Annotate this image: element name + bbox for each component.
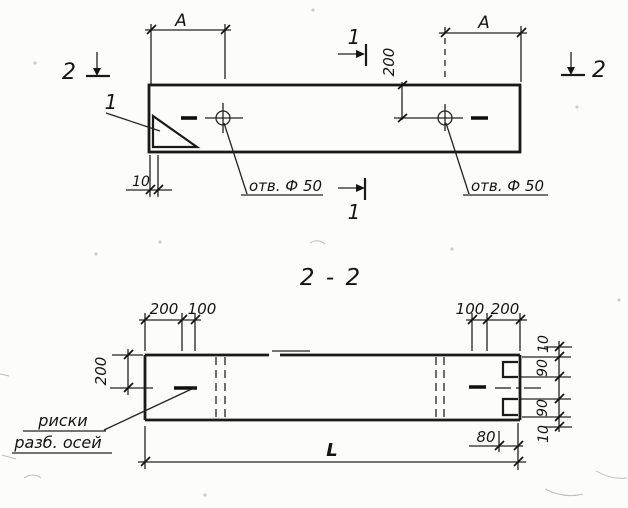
speck — [576, 106, 578, 108]
speck — [159, 241, 161, 243]
blueprint-svg: 1 A — [0, 0, 628, 508]
section-2-right-label: 2 — [592, 58, 606, 83]
plan-beam-outline — [149, 85, 520, 152]
detail-callout-1: 1 — [105, 90, 160, 131]
notch-bottom — [503, 399, 518, 415]
speck — [34, 62, 36, 64]
paper-artifacts — [0, 9, 627, 496]
hole-right — [394, 104, 488, 131]
axis-note-line2: разб. осей — [13, 433, 101, 452]
dim-a-left-label: A — [174, 11, 187, 31]
dim-chain-10-top: 10 — [536, 335, 552, 353]
section-marker-2-left: 2 — [62, 52, 110, 85]
center-axis — [174, 387, 541, 388]
leader — [446, 123, 469, 194]
dim-a-left: A — [145, 11, 231, 84]
speck-curve — [596, 471, 627, 478]
hidden-hole-axes — [216, 357, 444, 418]
dim-left-100-label: 100 — [188, 300, 217, 318]
dim-80-label: 80 — [476, 428, 495, 446]
arrow-down-icon — [93, 68, 101, 76]
section-view: 2 - 2 — [12, 265, 572, 470]
hole-label-right-text: отв. Ф 50 — [471, 177, 544, 195]
hole-label-left: отв. Ф 50 — [224, 123, 323, 195]
dim-a-right-label: A — [477, 13, 490, 33]
section-marker-1-top: 1 — [338, 25, 366, 66]
dim-200-plan-label: 200 — [380, 48, 398, 77]
axis-note-line1: риски — [37, 411, 87, 430]
hole-label-left-text: отв. Ф 50 — [249, 177, 322, 195]
leader — [224, 123, 247, 194]
section-beam-outline — [145, 351, 520, 420]
dim-right-200-label: 200 — [491, 300, 520, 318]
speck — [618, 299, 620, 301]
dim-chain-right: 10 90 90 10 — [521, 335, 572, 443]
drawing-sheet: 1 A — [0, 0, 628, 508]
dim-right-100-200: 100 200 — [456, 300, 527, 351]
dim-chain-90-top: 90 — [535, 359, 551, 377]
hole-label-right: отв. Ф 50 — [446, 123, 548, 195]
notch-top — [503, 362, 518, 377]
dim-left-200-100: 200 100 — [139, 300, 216, 351]
dim-chain-90-bottom: 90 — [535, 399, 551, 417]
speck-curve — [545, 489, 583, 496]
note-leader — [104, 387, 196, 430]
dim-80: 80 — [469, 428, 523, 452]
plan-view: 1 A — [62, 11, 606, 224]
dim-height-200-label: 200 — [92, 357, 110, 386]
dim-a-right: A — [439, 13, 527, 82]
speck — [95, 253, 97, 255]
dim-right-100-label: 100 — [456, 300, 485, 318]
dim-length-label: L — [326, 440, 337, 461]
speck-curve — [24, 475, 41, 478]
speck — [312, 9, 314, 11]
dim-10-plan-label: 10 — [132, 174, 150, 190]
speck — [451, 248, 453, 250]
section-title: 2 - 2 — [300, 265, 362, 291]
section-1-bottom-label: 1 — [348, 200, 361, 224]
speck-curve — [310, 241, 325, 244]
speck-curve — [0, 374, 9, 376]
speck-curve — [2, 455, 16, 459]
detail-callout-label: 1 — [105, 90, 118, 114]
section-2-left-label: 2 — [62, 60, 76, 85]
dim-left-200-label: 200 — [150, 300, 179, 318]
section-1-top-label: 1 — [348, 25, 361, 49]
dim-length: L — [138, 423, 526, 470]
arrow-right-icon — [356, 184, 365, 192]
section-marker-2-right: 2 — [561, 52, 606, 83]
arrow-right-icon — [356, 50, 365, 58]
section-marker-1-bottom: 1 — [338, 178, 365, 224]
hole-left — [181, 103, 243, 133]
arrow-down-icon — [567, 67, 575, 75]
dim-10-plan: 10 — [126, 155, 172, 197]
speck — [204, 494, 206, 496]
dim-chain-10-bottom: 10 — [536, 425, 552, 443]
